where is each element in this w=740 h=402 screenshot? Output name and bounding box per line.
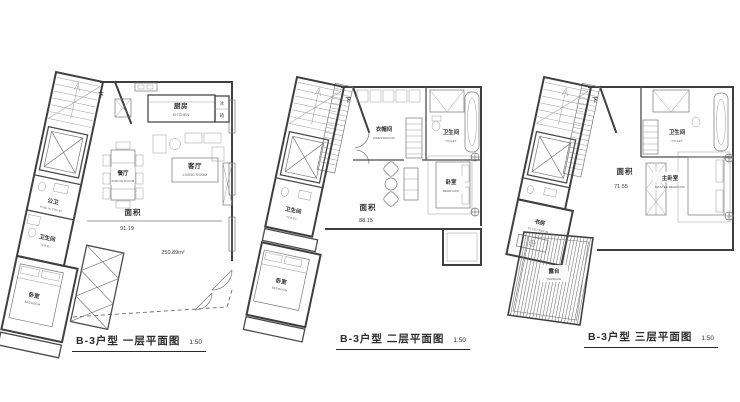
area-annotation: 面积 91.19 250.89m²	[87, 207, 222, 256]
floorplan-sheet: 厨房 KITCHEN 冰 箱 餐厅 DINING ROOM 客厅 LIVING …	[0, 0, 740, 402]
service-wing: 卫生间 TOILET 卧室 BEDROOM	[243, 77, 355, 342]
elevator-icon	[527, 132, 575, 183]
area-label: 面积	[617, 166, 634, 176]
wall-lamp-icon	[725, 154, 733, 220]
area-value: 88.15	[359, 218, 373, 224]
master-label-zh: 主卧室	[662, 174, 679, 182]
elevator-icon	[39, 127, 87, 178]
public-toilet-label-en: PUBLIC TOILET	[40, 205, 64, 214]
fridge-icon: 冰 箱	[215, 96, 229, 122]
room-toilet: 卫生间 TOILET	[23, 214, 60, 249]
room-bedroom-right: 卧室 BEDROOM	[428, 153, 479, 216]
plan-scale: 1:50	[189, 339, 202, 346]
tv-cabinet-icon	[223, 163, 232, 205]
room-bedroom-bottom: 卧室 BEDROOM	[247, 242, 321, 327]
plan-title-text: B-3户型 二层平面图	[340, 331, 444, 346]
sitting-area	[383, 161, 418, 208]
kitchen-label-zh: 厨房	[174, 101, 188, 110]
room-toilet-top: 卫生间 TOILET	[430, 90, 479, 152]
bedroom-right-label-en: BEDROOM	[443, 189, 459, 193]
fridge-label-top: 冰	[220, 100, 225, 106]
floorplan-third-floor: 卫生间 TOILET 主卧室 MASTER BEDROOM 面积 71.55	[503, 60, 740, 402]
terrace-label-zh: 露台	[548, 267, 560, 275]
bedroom-right-label-zh: 卧室	[445, 178, 457, 186]
interior-walls	[641, 87, 733, 157]
stair-direction-label: 下	[98, 92, 104, 99]
room-master-bedroom: 主卧室 MASTER BEDROOM	[653, 152, 733, 222]
room-bedroom: 卧室 BEDROOM	[1, 256, 77, 342]
stairs-icon	[48, 77, 100, 127]
area-label: 面积	[125, 207, 142, 217]
shelf-rack-icon	[406, 118, 422, 158]
plan-title-text: B-3户型 一层平面图	[76, 333, 180, 348]
room-living: 客厅 LIVING ROOM	[153, 133, 232, 205]
toilet-top-label-en: TOILET	[445, 139, 457, 143]
living-label-en: LIVING ROOM	[183, 173, 208, 177]
fridge-label-bottom: 箱	[220, 112, 225, 119]
room-toilet: 卫生间 TOILET	[643, 90, 728, 154]
area-annotation: 面积 71.55	[614, 166, 633, 190]
door-arc-icon	[355, 132, 369, 164]
elevator-icon	[280, 132, 328, 183]
terrace: 露台 TERRACE	[508, 232, 593, 325]
stair-direction-label: 下	[345, 97, 351, 104]
service-wing: 公卫 PUBLIC TOILET 卫生间 TOILET 卧室 BEDROOM	[0, 72, 158, 367]
toilet-label-en: TOILET	[671, 139, 683, 143]
public-toilet-label-zh: 公卫	[47, 197, 60, 206]
toilet-label-zh: 卫生间	[669, 128, 686, 136]
room-public-toilet: 公卫 PUBLIC TOILET	[34, 180, 69, 214]
area-value: 71.55	[614, 184, 628, 190]
plan-scale: 1:50	[701, 335, 714, 342]
study-label-zh: 书房	[534, 217, 547, 227]
outer-walls	[589, 87, 733, 250]
dressroom-label-zh: 衣帽间	[376, 125, 393, 133]
dining-label-en: DINING ROOM	[112, 179, 135, 183]
living-label-zh: 客厅	[187, 161, 202, 170]
kitchen-label-en: KITCHEN	[173, 113, 190, 117]
annex-court	[443, 229, 481, 265]
door-arc-icon	[195, 270, 232, 310]
floorplan-second-floor: 衣帽间 DRESSROOM 卫生间 TOILET 卧室 BEDROOM	[256, 60, 501, 360]
floorplan-first-floor: 厨房 KITCHEN 冰 箱 餐厅 DINING ROOM 客厅 LIVING …	[15, 55, 250, 360]
toilet-label-en: TOILET	[40, 243, 52, 249]
stairs-icon	[289, 82, 341, 132]
plan-title-first-floor: B-3户型 一层平面图 1:50	[72, 333, 206, 352]
shower-icon	[430, 90, 464, 112]
dining-label-zh: 餐厅	[116, 169, 129, 177]
dressroom-label-en: DRESSROOM	[373, 136, 395, 140]
plan-title-second-floor: B-3户型 二层平面图 1:50	[336, 331, 470, 350]
wardrobe-icon	[646, 163, 666, 215]
room-toilet-left: 卫生间 TOILET	[276, 186, 311, 222]
bathtub-icon	[714, 93, 728, 151]
area-label: 面积	[360, 202, 377, 212]
terrace-label-en: TERRACE	[547, 277, 562, 281]
shower-icon	[653, 90, 689, 112]
shelf-rack-icon	[643, 120, 658, 154]
void-cross-braces	[70, 245, 123, 329]
plan-scale: 1:50	[453, 337, 466, 344]
toilet-left-label-en: TOILET	[286, 215, 298, 221]
plan-title-text: B-3户型 三层平面图	[588, 329, 692, 344]
bathtub-icon	[465, 92, 479, 152]
stair-direction-label: 下	[592, 97, 598, 104]
room-kitchen: 厨房 KITCHEN	[135, 83, 215, 122]
outer-walls	[73, 82, 232, 317]
stairs-icon	[536, 82, 588, 132]
master-label-en: MASTER BEDROOM	[655, 185, 685, 189]
area-annotation: 面积 88.15	[359, 202, 376, 224]
total-area-value: 250.89m²	[161, 250, 184, 256]
interior-walls	[353, 87, 481, 160]
plan-title-third-floor: B-3户型 三层平面图 1:50	[584, 329, 718, 348]
area-value: 91.19	[120, 226, 134, 232]
room-dining: 餐厅 DINING ROOM	[103, 142, 143, 208]
toilet-top-label-zh: 卫生间	[443, 128, 460, 136]
